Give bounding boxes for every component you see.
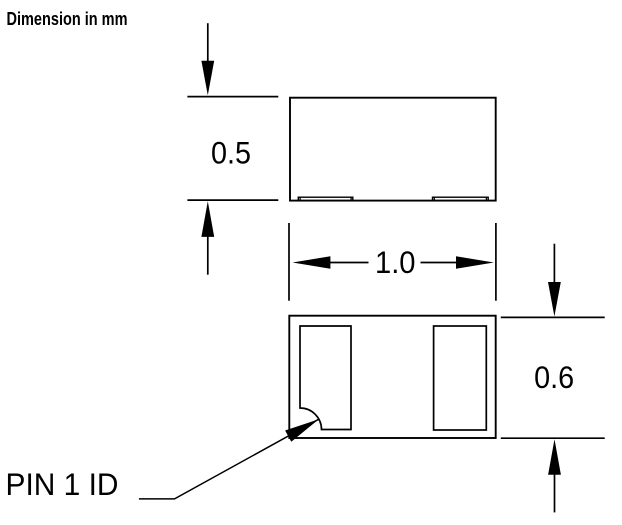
svg-text:1.0: 1.0 xyxy=(375,244,416,280)
svg-text:Dimension in mm: Dimension in mm xyxy=(7,9,128,29)
svg-text:PIN 1 ID: PIN 1 ID xyxy=(6,466,119,502)
svg-text:0.6: 0.6 xyxy=(534,359,574,395)
svg-text:0.5: 0.5 xyxy=(211,135,251,171)
